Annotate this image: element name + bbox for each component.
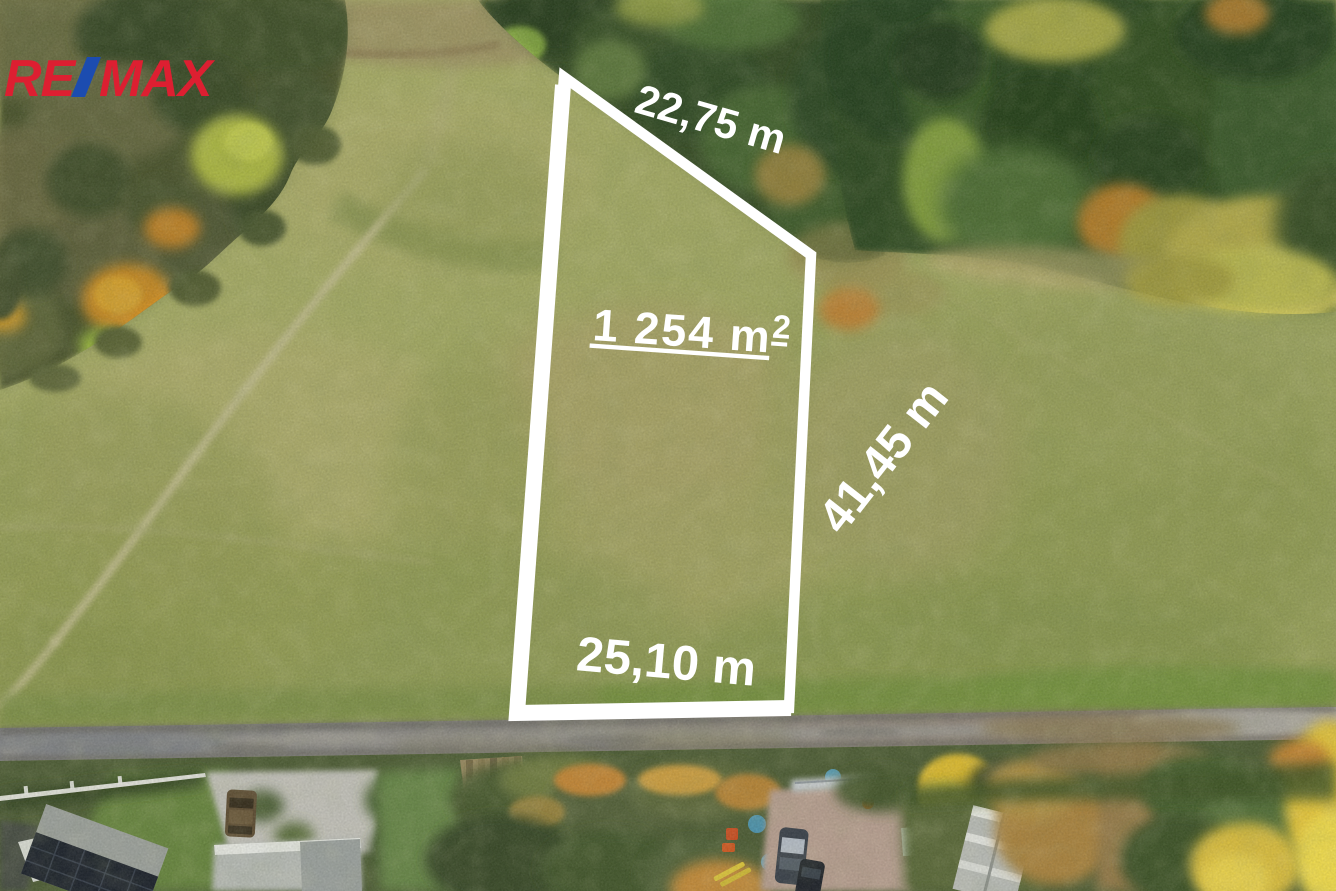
svg-text:MAX: MAX <box>99 50 216 108</box>
svg-text:RE: RE <box>4 50 77 108</box>
